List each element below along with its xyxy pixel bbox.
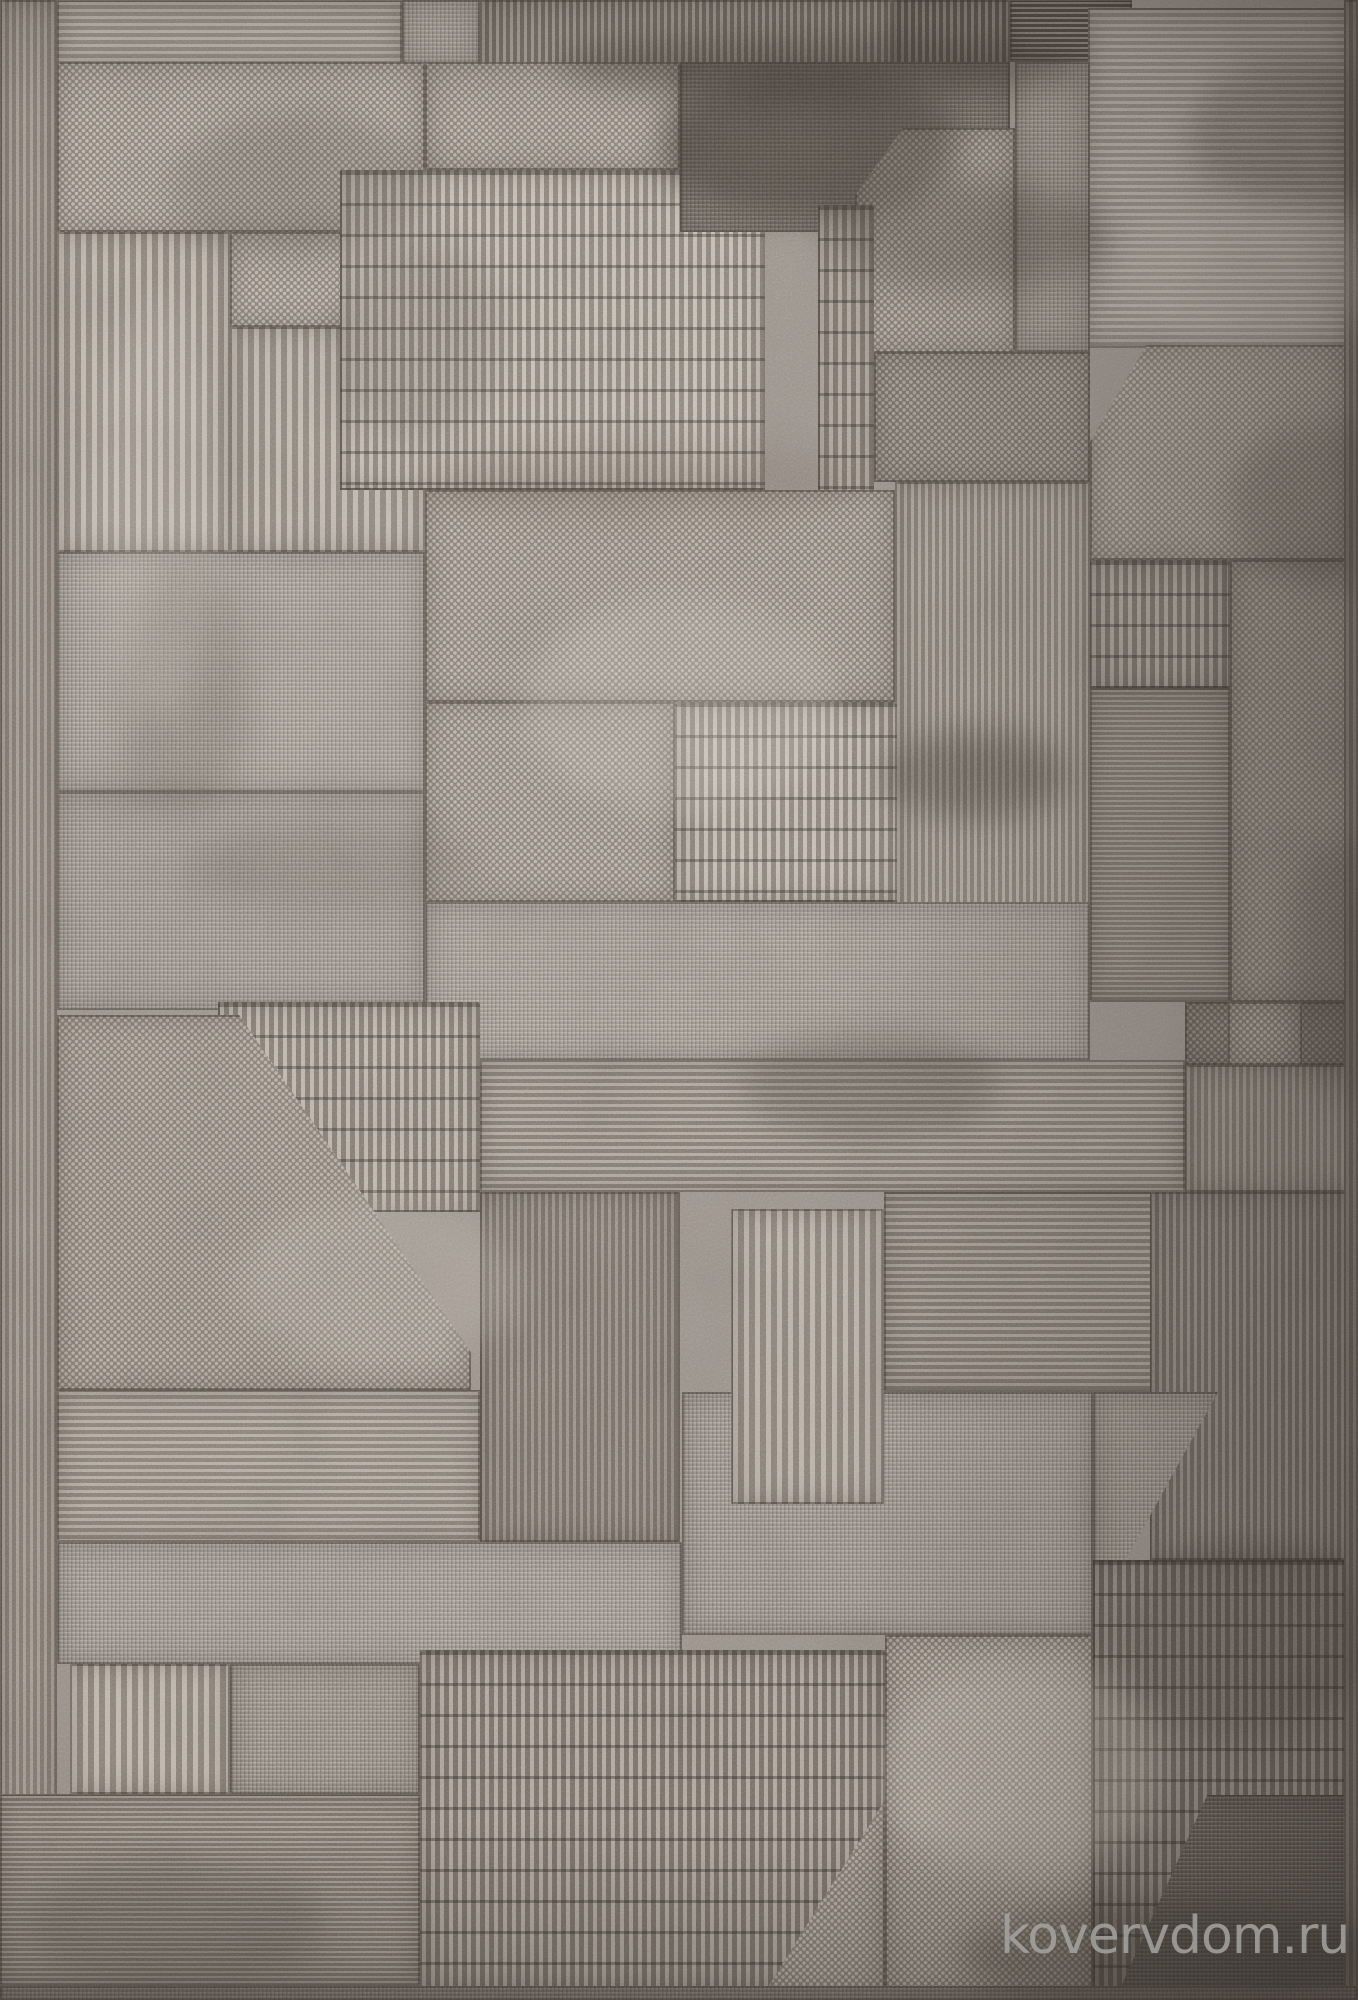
rug-patch-knit-ml-a: [57, 552, 425, 792]
watermark-text: kovervdom.ru: [1000, 1908, 1349, 1965]
rug-patch-bottom-edge: [0, 1986, 1358, 2000]
rug-patch-hlines-left-low: [57, 1390, 480, 1542]
rug-patch-hribs-bottom: [0, 1794, 420, 1986]
rug-patch-vstripes-bl: [70, 1664, 230, 1794]
rug-patch-vribs-ctr-low: [480, 1192, 680, 1542]
rug-photo: kovervdom.ru: [0, 0, 1358, 2000]
rug-patch-pent-dots-ctr: [855, 128, 1015, 353]
rug-patch-dots-center-top: [425, 62, 680, 170]
rug-patch-knit-band-mid: [874, 352, 1090, 482]
rug-patch-dash-strip: [818, 205, 874, 505]
rug-patch-pent-dots-right: [1090, 345, 1346, 560]
rug-patch-dash-center: [675, 702, 897, 902]
rug-patch-dots-rc-sq: [1228, 1002, 1302, 1065]
rug-patch-right-edge: [1344, 0, 1358, 2000]
rug-patch-dots-center-b: [425, 702, 675, 902]
rug-patch-top-hlines-left: [57, 0, 402, 64]
rug-patch-vribs-rc-big: [1150, 1192, 1358, 1560]
rug-patch-knit-ml-b: [57, 792, 425, 1010]
rug-patch-top-knit-gap: [402, 0, 480, 64]
rug-patch-knit-band-left: [57, 1542, 682, 1664]
rug-patch-dots-right-col: [1230, 560, 1358, 1002]
rug-patch-vstripes-low: [731, 1209, 884, 1504]
rug-patch-knit-band-ctr: [425, 902, 1090, 1060]
rug-patch-dash-right-mid: [1090, 560, 1230, 688]
rug-patch-hlines-wide: [480, 1060, 1185, 1192]
rug-patch-knit-bl: [230, 1664, 420, 1794]
rug-patch-hlines-right-low: [884, 1192, 1185, 1392]
rug-patch-left-edge: [0, 0, 57, 2000]
rug-patch-knit-strip-r: [1015, 62, 1090, 352]
rug-patch-vribs-rc: [1185, 1065, 1358, 1192]
rug-patch-left-vstripes-a: [57, 232, 230, 552]
rug-patch-dots-center: [425, 490, 895, 702]
rug-patch-hlines-right-mid: [1090, 688, 1230, 1002]
rug-patch-tr-hlines-block: [1088, 8, 1346, 348]
